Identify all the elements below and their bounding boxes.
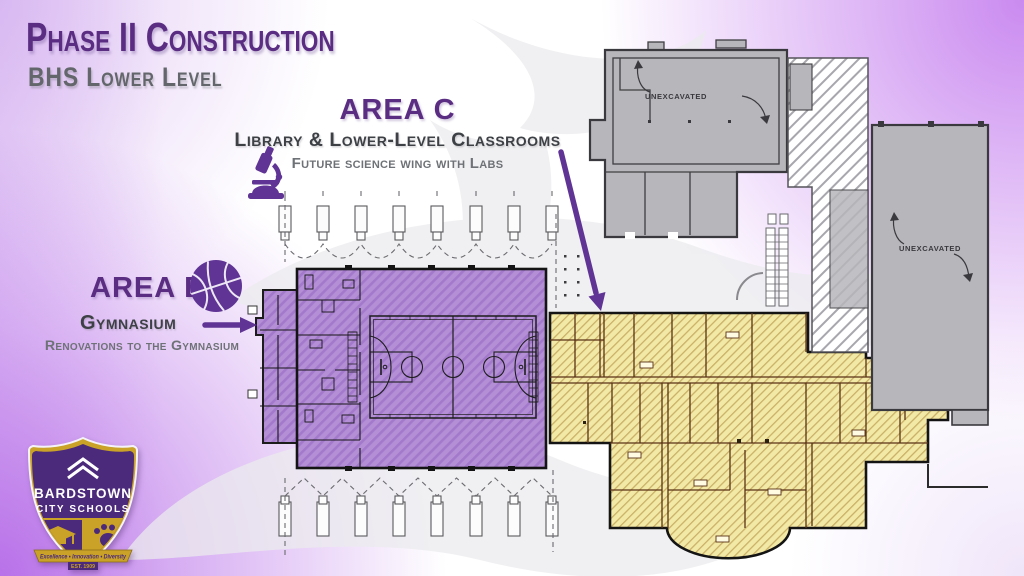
logo-established: EST. 1909 — [71, 564, 95, 570]
area-b-detail: Renovations to the Gymnasium — [22, 338, 262, 354]
logo-name-line1: BARDSTOWN — [34, 486, 132, 501]
page-title: Phase II Construction — [26, 14, 335, 61]
unexcavated-label-right: UNEXCAVATED — [899, 244, 961, 253]
wall-extension-line — [928, 464, 988, 487]
area-b-annotation: AREA B Gymnasium Renovations to the Gymn… — [18, 272, 268, 372]
area-b-gym-shape — [248, 265, 546, 471]
logo-name-line2: CITY SCHOOLS — [36, 504, 130, 515]
upper-gray-building: UNEXCAVATED — [590, 40, 787, 239]
unexcavated-label-upper: UNEXCAVATED — [645, 92, 707, 101]
page-title-text: Phase II Construction — [26, 14, 335, 60]
district-logo: BARDSTOWN CITY SCHOOLS Excellence • Inno… — [16, 434, 150, 574]
area-b-subheading: Gymnasium — [80, 312, 176, 335]
stairs-connector — [737, 214, 788, 306]
microscope-icon — [245, 146, 287, 202]
basketball-icon — [188, 258, 244, 314]
logo-motto: Excellence • Innovation • Diversity — [40, 554, 126, 561]
page-subtitle: BHS Lower Level — [28, 62, 222, 93]
area-c-arrow — [561, 152, 606, 311]
slide-canvas: UNEXCAVATED — [0, 0, 1024, 576]
area-c-heading: AREA C — [225, 94, 570, 127]
page-subtitle-text: BHS Lower Level — [28, 62, 222, 92]
area-c-annotation: AREA C Library & Lower-Level Classrooms … — [225, 94, 570, 172]
hatched-zone — [788, 58, 868, 352]
